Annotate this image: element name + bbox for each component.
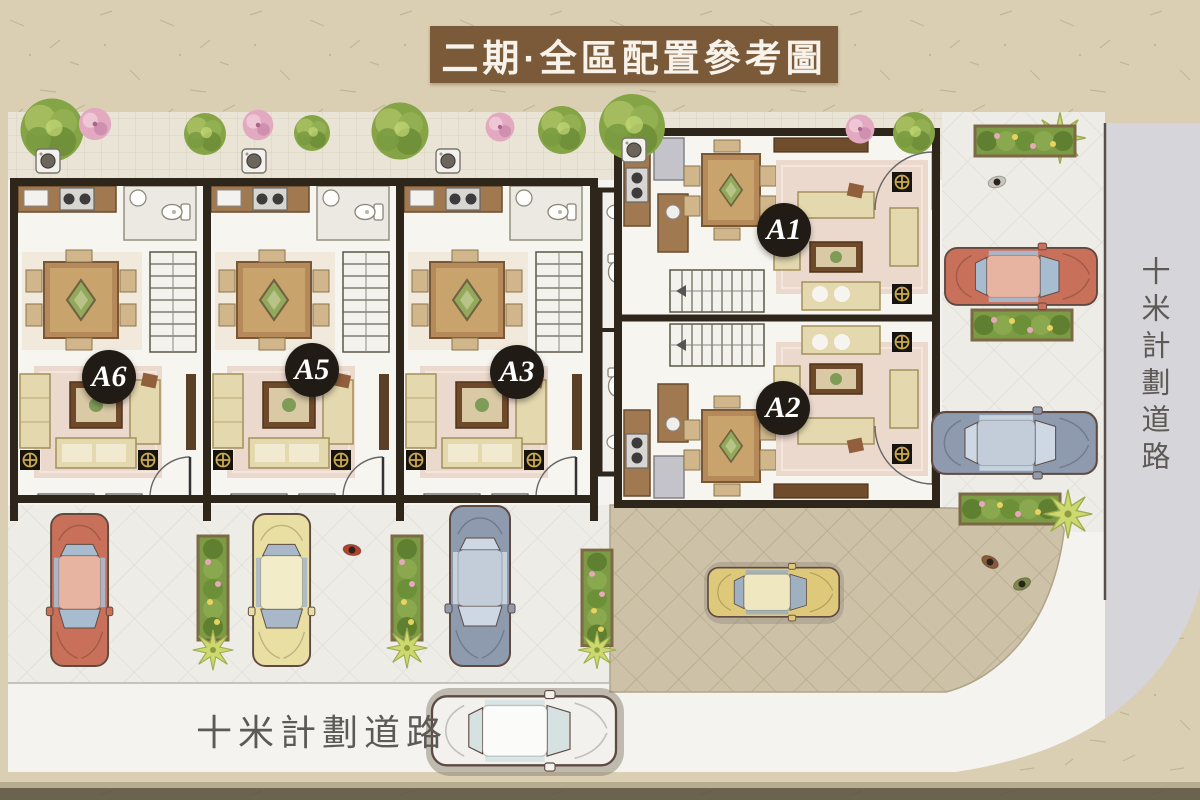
car-blue-front xyxy=(445,506,515,666)
road-label-right: 十米計劃道路 xyxy=(1132,256,1174,478)
site-plan-photo: 二期·全區配置參考圖 A1 A2 A3 A5 A6 十米計劃道路 十米計劃道路 xyxy=(0,0,1200,800)
page-title: 二期·全區配置參考圖 xyxy=(441,28,826,82)
car-red-front xyxy=(46,514,113,666)
unit-label-a2: A2 xyxy=(756,381,810,435)
car-red-right xyxy=(945,243,1097,310)
car-blue-right xyxy=(932,407,1097,479)
unit-label-a6: A6 xyxy=(82,350,136,404)
car-yellow-front xyxy=(248,514,315,666)
car-white-bottom xyxy=(426,688,624,776)
unit-label-a3: A3 xyxy=(490,345,544,399)
unit-label-a1: A1 xyxy=(757,203,811,257)
car-yellow-road xyxy=(704,562,844,624)
road-label-bottom: 十米計劃道路 xyxy=(196,704,448,756)
right-building xyxy=(600,132,938,504)
title-banner: 二期·全區配置參考圖 xyxy=(430,26,838,83)
unit-label-a5: A5 xyxy=(285,343,339,397)
site-plan-canvas xyxy=(0,0,1200,800)
